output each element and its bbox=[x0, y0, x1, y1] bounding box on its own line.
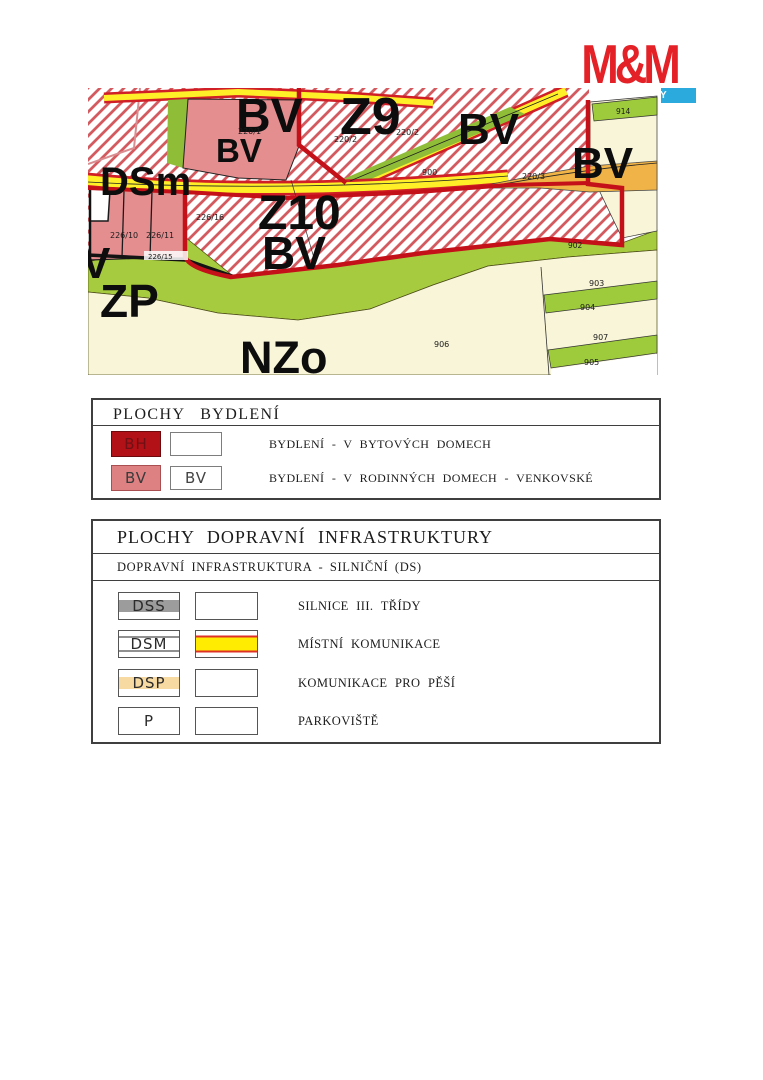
parcel-905: 905 bbox=[584, 358, 599, 367]
swatch-p-code: P bbox=[144, 714, 154, 729]
swatch-dss-alt bbox=[195, 592, 258, 620]
swatch-dss: DSS bbox=[118, 592, 180, 620]
zone-label-bv-4: BV bbox=[572, 139, 634, 188]
parcel-900: 900 bbox=[422, 168, 437, 177]
zoning-map: BV BV Z9 BV BV DSm Z10 BV ZP NZo V 220/1… bbox=[88, 88, 661, 375]
legend-dsp-description: KOMUNIKACE PRO PĚŠÍ bbox=[298, 676, 455, 691]
parcel-226-11: 226/11 bbox=[146, 231, 174, 240]
swatch-bv-hatched: BV bbox=[170, 466, 222, 490]
zone-label-bv-5: BV bbox=[262, 227, 326, 279]
swatch-dsp: DSP bbox=[118, 669, 180, 697]
parcel-903: 903 bbox=[589, 279, 604, 288]
swatch-dsm-code: DSM bbox=[130, 637, 167, 652]
logo-brand-text: M&M bbox=[571, 38, 687, 90]
parcel-226-16: 226/16 bbox=[196, 213, 224, 222]
swatch-dss-code: DSS bbox=[132, 599, 166, 614]
legend-transport: PLOCHY DOPRAVNÍ INFRASTRUKTURY DOPRAVNÍ … bbox=[91, 519, 661, 744]
zone-label-nzo: NZo bbox=[240, 332, 327, 375]
parcel-904: 904 bbox=[580, 303, 595, 312]
page: M&M REALITY bbox=[0, 0, 763, 1080]
legend-housing: PLOCHY BYDLENÍ BH BYDLENÍ - V BYTOVÝCH D… bbox=[91, 398, 661, 500]
swatch-bh: BH bbox=[111, 431, 161, 457]
legend-bv-description: BYDLENÍ - V RODINNÝCH DOMECH - VENKOVSKÉ bbox=[269, 471, 593, 486]
parcel-220-2b: 220/2 bbox=[396, 128, 419, 137]
swatch-dsp-code: DSP bbox=[132, 676, 165, 691]
legend-transport-title: PLOCHY DOPRAVNÍ INFRASTRUKTURY bbox=[117, 527, 493, 548]
dsm-yellow-road-band bbox=[196, 636, 257, 653]
parcel-226-10: 226/10 bbox=[110, 231, 138, 240]
legend-housing-title: PLOCHY BYDLENÍ bbox=[113, 406, 280, 424]
legend-housing-rule bbox=[93, 425, 659, 426]
parcel-902: 902 bbox=[568, 241, 583, 250]
parcel-226-15: 226/15 bbox=[148, 253, 173, 261]
zone-label-dsm: DSm bbox=[100, 160, 191, 204]
swatch-dsm: DSM bbox=[118, 630, 180, 658]
swatch-dsp-alt bbox=[195, 669, 258, 697]
parcel-907: 907 bbox=[593, 333, 608, 342]
swatch-bv-code: BV bbox=[125, 471, 147, 486]
swatch-bh-code: BH bbox=[124, 437, 148, 452]
zone-label-bv-3: BV bbox=[458, 105, 520, 154]
legend-bh-description: BYDLENÍ - V BYTOVÝCH DOMECH bbox=[269, 437, 491, 452]
swatch-bv: BV bbox=[111, 465, 161, 491]
zone-label-bv-2: BV bbox=[216, 132, 262, 169]
swatch-p-alt bbox=[195, 707, 258, 735]
parcel-220-1: 220/1 bbox=[238, 127, 261, 136]
parcel-914: 914 bbox=[616, 107, 631, 116]
legend-dss-description: SILNICE III. TŘÍDY bbox=[298, 599, 421, 614]
swatch-p: P bbox=[118, 707, 180, 735]
legend-dsm-description: MÍSTNÍ KOMUNIKACE bbox=[298, 637, 440, 652]
swatch-bv-hatched-code: BV bbox=[185, 471, 207, 486]
legend-transport-rule-2 bbox=[93, 580, 659, 581]
legend-transport-subtitle: DOPRAVNÍ INFRASTRUKTURA - SILNIČNÍ (DS) bbox=[117, 560, 422, 575]
parcel-906: 906 bbox=[434, 340, 449, 349]
zone-label-v: V bbox=[88, 239, 111, 288]
swatch-dsm-road bbox=[195, 630, 258, 658]
swatch-bh-alt bbox=[170, 432, 222, 456]
legend-transport-rule-1 bbox=[93, 553, 659, 554]
parcel-220-2a: 220/2 bbox=[334, 135, 357, 144]
parcel-220-3: 220/3 bbox=[522, 172, 545, 181]
legend-p-description: PARKOVIŠTĚ bbox=[298, 714, 379, 729]
